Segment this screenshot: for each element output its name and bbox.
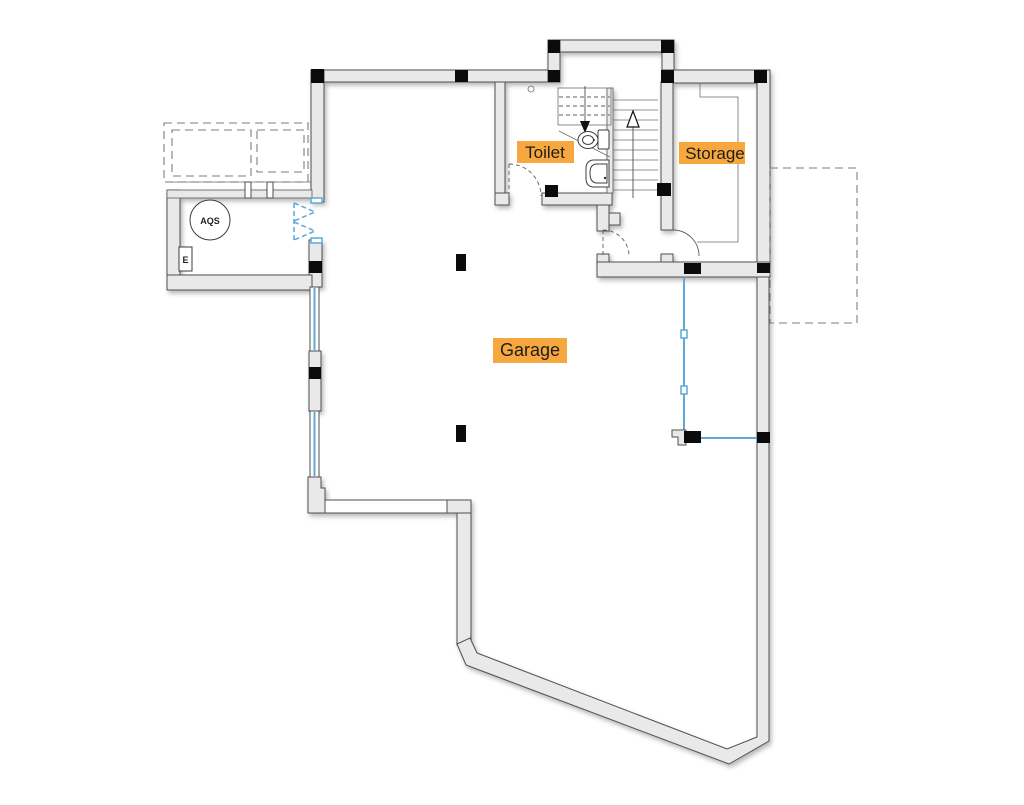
floor-plan-drawing: AQS E Toilet Storage Garage xyxy=(0,0,1024,805)
stair-above-treads xyxy=(559,97,610,115)
stair-treads xyxy=(613,100,658,190)
column xyxy=(309,261,322,273)
column xyxy=(684,263,701,274)
wall-aqs-bottom xyxy=(167,275,312,290)
canopy-bay-2 xyxy=(257,130,304,172)
wall-left-upper xyxy=(311,70,324,202)
aqs-door-jamb-bottom xyxy=(311,238,322,243)
overhead-terrace-outline xyxy=(770,168,857,323)
partition-end-bracket xyxy=(672,430,686,445)
column xyxy=(455,70,468,82)
wall-toilet-left xyxy=(495,82,505,205)
storage-label: Storage xyxy=(685,144,745,163)
aqs-room-equipment: AQS E xyxy=(179,200,230,271)
canopy-post-2 xyxy=(267,182,273,198)
wall-toilet-bottom-jamb xyxy=(495,193,509,205)
toilet-bowl-inner xyxy=(583,136,594,145)
wall-block-bottom xyxy=(597,262,770,277)
wall-aqs-top xyxy=(167,190,312,198)
column xyxy=(545,185,558,197)
aqs-door-jamb-top xyxy=(311,198,322,203)
toilet-flush-dot xyxy=(593,139,595,141)
dashed-overhead-outlines xyxy=(164,123,857,323)
wall-left-mid2 xyxy=(309,351,321,411)
floor-plan-canvas: AQS E Toilet Storage Garage xyxy=(0,0,1024,805)
wall-landing-nib xyxy=(609,213,620,225)
bathroom-fixtures xyxy=(528,86,609,187)
toilet-door-swing xyxy=(509,164,541,196)
column xyxy=(757,263,770,273)
column xyxy=(309,367,321,379)
toilet-tank xyxy=(598,130,609,149)
ceiling-point-icon xyxy=(528,86,534,92)
wall-corner-front-left xyxy=(308,477,325,513)
sink-basin xyxy=(590,164,607,183)
column xyxy=(456,425,466,442)
column xyxy=(456,254,466,271)
column xyxy=(661,40,674,53)
toilet-label: Toilet xyxy=(525,143,565,162)
stair-up-arrow-icon xyxy=(627,111,639,127)
room-labels: Toilet Storage Garage xyxy=(493,141,745,363)
wall-right-upper xyxy=(757,70,770,277)
garage-label: Garage xyxy=(500,340,560,360)
canopy-outline xyxy=(164,123,308,182)
column xyxy=(754,70,767,83)
stair-above-outline xyxy=(558,88,611,125)
column xyxy=(661,70,674,83)
column xyxy=(311,69,324,83)
wall-stairtower-top xyxy=(548,40,674,52)
wall-storage-top xyxy=(662,70,770,83)
partition-mullion-1 xyxy=(681,330,687,338)
electrical-panel-label: E xyxy=(182,255,188,265)
canopy-bay-1 xyxy=(172,130,251,176)
partition-mullion-2 xyxy=(681,386,687,394)
storage-door-swing xyxy=(673,230,699,256)
sink-tap-dot xyxy=(604,177,606,179)
column xyxy=(548,40,560,53)
column xyxy=(548,70,560,82)
structural-columns xyxy=(309,40,770,443)
stair-door-swing xyxy=(603,230,629,256)
column xyxy=(757,432,770,443)
column xyxy=(657,183,671,196)
wall-landing-left xyxy=(597,205,609,231)
wall-top-main xyxy=(312,70,558,82)
column xyxy=(684,431,701,443)
wall-garage-front xyxy=(325,500,447,513)
canopy-post-1 xyxy=(245,182,251,198)
aqs-door-leaf-1 xyxy=(294,203,315,221)
wall-left-lower xyxy=(457,513,471,645)
wall-stair-storage-divider xyxy=(661,82,673,230)
aqs-label: AQS xyxy=(200,216,220,226)
